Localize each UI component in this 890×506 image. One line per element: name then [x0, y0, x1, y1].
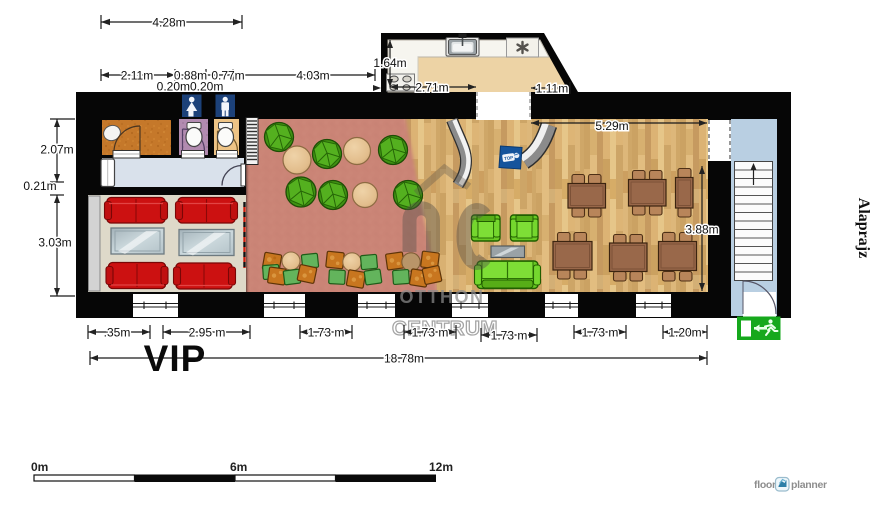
svg-text:6m: 6m — [230, 460, 247, 474]
svg-text:5.29m: 5.29m — [595, 119, 628, 133]
svg-text:1.20m: 1.20m — [668, 326, 701, 340]
svg-text:4.28m: 4.28m — [152, 16, 185, 30]
svg-text:0.20m0.20m: 0.20m0.20m — [157, 80, 224, 94]
svg-text:.35m: .35m — [104, 326, 131, 340]
svg-text:0m: 0m — [31, 460, 48, 474]
svg-text:2.07m: 2.07m — [40, 143, 73, 157]
svg-text:1.11m: 1.11m — [536, 82, 568, 96]
svg-text:planner: planner — [791, 479, 827, 491]
svg-text:3.03m: 3.03m — [38, 236, 71, 250]
svg-text:2.71m: 2.71m — [415, 81, 448, 95]
svg-text:floor: floor — [754, 479, 776, 491]
svg-text:1.64m: 1.64m — [373, 56, 406, 70]
svg-text:1.73 m: 1.73 m — [308, 326, 345, 340]
svg-text:2.11m: 2.11m — [121, 69, 153, 83]
svg-text:1.73 m: 1.73 m — [582, 326, 619, 340]
svg-text:1.73 m: 1.73 m — [491, 329, 528, 343]
svg-text:0.21m: 0.21m — [23, 179, 56, 193]
svg-text:18.78m: 18.78m — [384, 352, 424, 366]
svg-text:VIP: VIP — [144, 338, 207, 379]
svg-text:12m: 12m — [429, 460, 453, 474]
svg-text:3.88m: 3.88m — [685, 223, 718, 237]
svg-text:4.03m: 4.03m — [296, 69, 329, 83]
svg-text:OTTHON: OTTHON — [400, 287, 485, 307]
svg-text:Alaprajz: Alaprajz — [855, 198, 872, 258]
svg-text:1.73 m: 1.73 m — [412, 326, 449, 340]
